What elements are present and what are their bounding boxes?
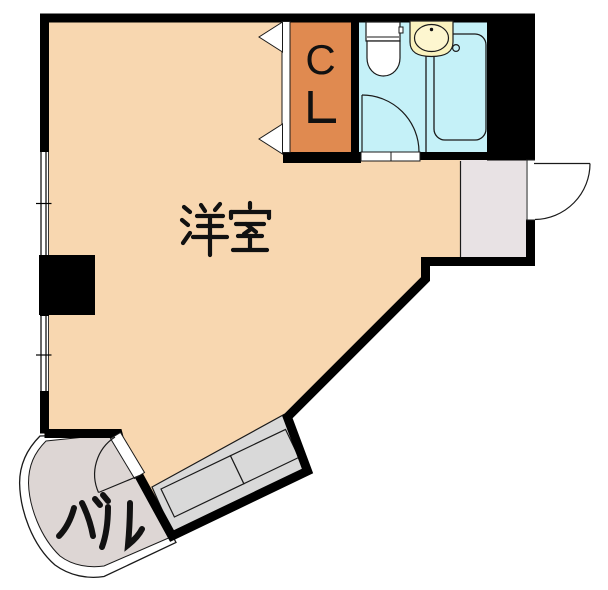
svg-text:C: C — [305, 36, 335, 83]
